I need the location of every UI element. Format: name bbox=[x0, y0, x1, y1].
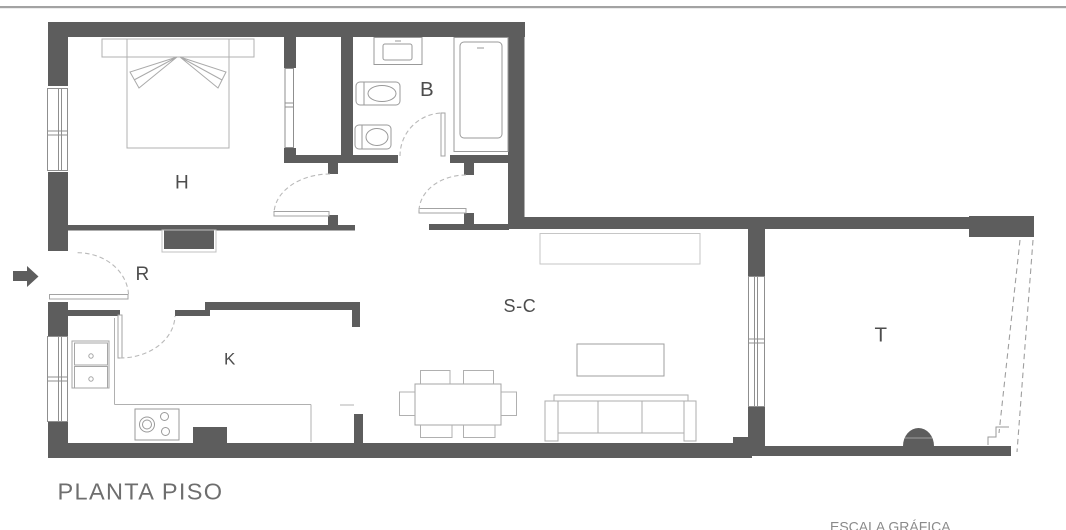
svg-text:B: B bbox=[420, 78, 434, 101]
svg-text:S-C: S-C bbox=[504, 296, 537, 316]
svg-text:K: K bbox=[224, 350, 236, 369]
svg-text:PLANTA PISO: PLANTA PISO bbox=[58, 479, 224, 505]
svg-text:T: T bbox=[875, 324, 888, 347]
svg-text:ESCALA GRÁFICA: ESCALA GRÁFICA bbox=[830, 519, 951, 530]
svg-text:R: R bbox=[136, 264, 150, 285]
svg-text:H: H bbox=[175, 173, 189, 194]
